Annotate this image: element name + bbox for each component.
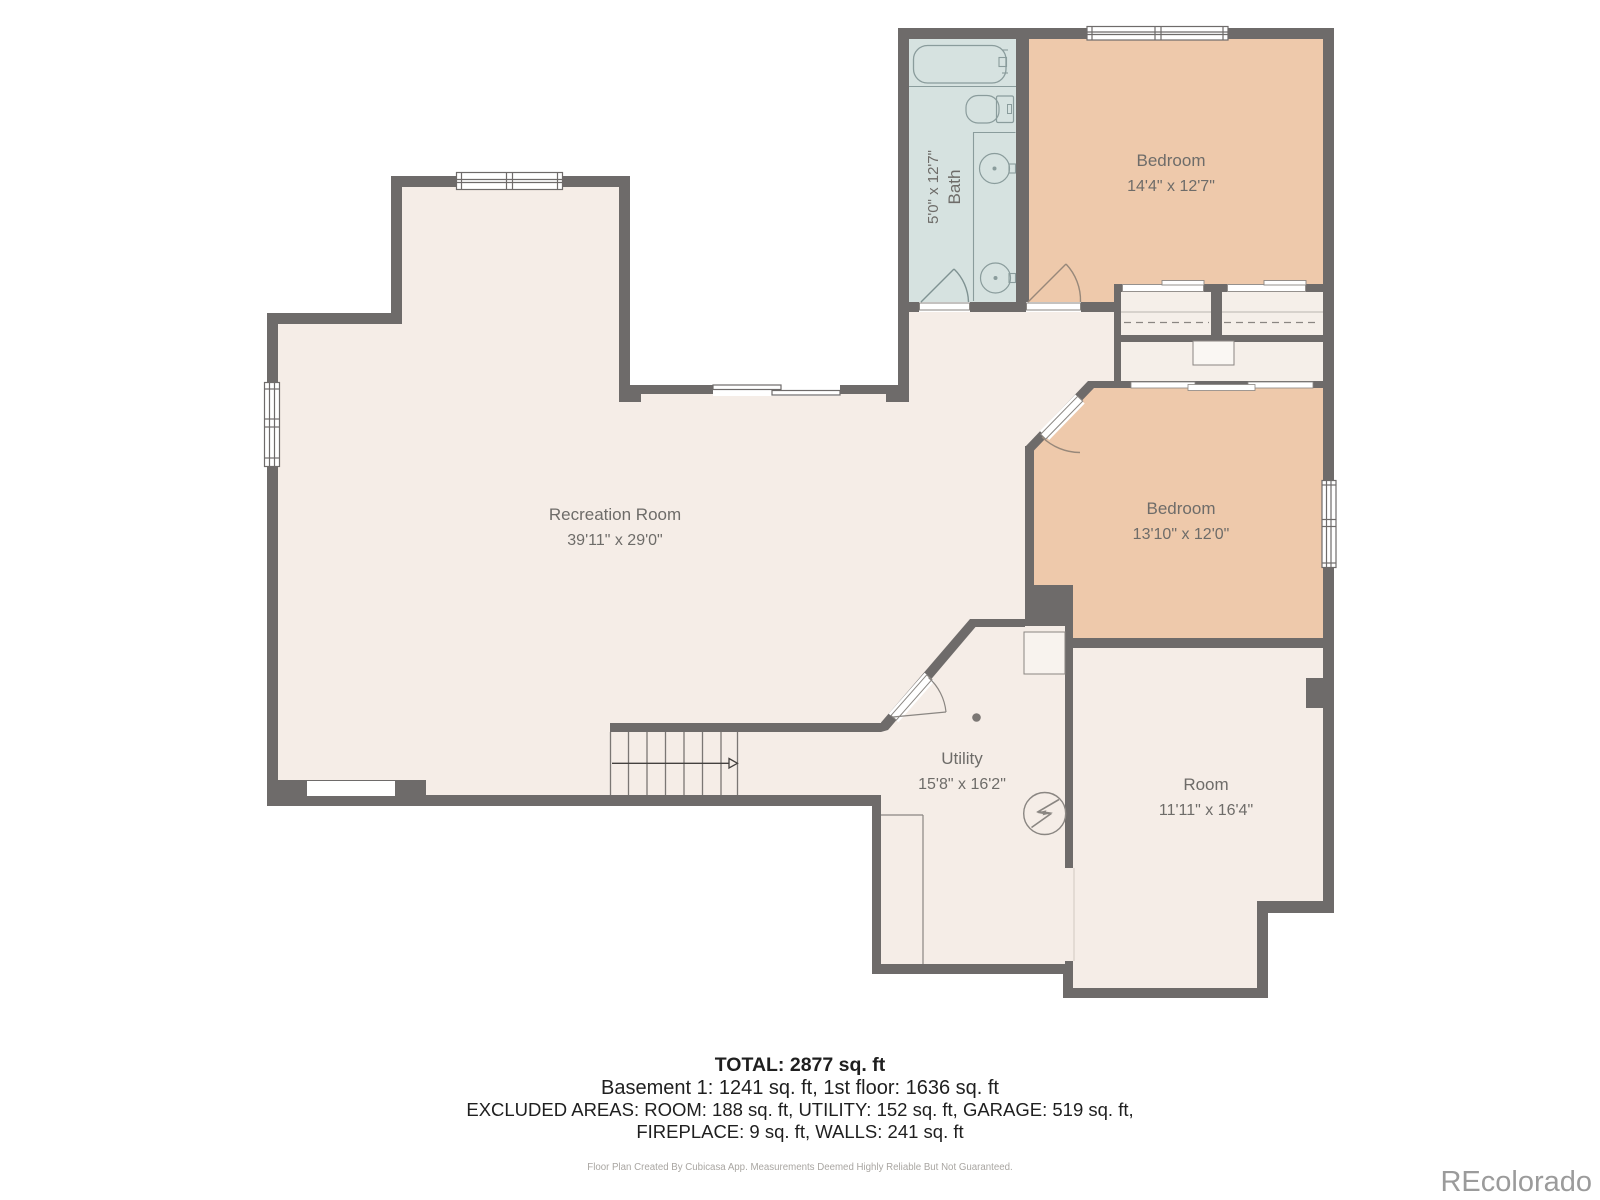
svg-text:FIREPLACE: 9 sq. ft, WALLS: 24: FIREPLACE: 9 sq. ft, WALLS: 241 sq. ft <box>636 1121 963 1142</box>
svg-text:Basement 1: 1241 sq. ft, 1st f: Basement 1: 1241 sq. ft, 1st floor: 1636… <box>601 1077 999 1099</box>
svg-text:TOTAL: 2877 sq. ft: TOTAL: 2877 sq. ft <box>715 1054 886 1076</box>
svg-text:14'4" x 12'7": 14'4" x 12'7" <box>1127 178 1215 195</box>
svg-text:15'8" x 16'2": 15'8" x 16'2" <box>918 776 1006 793</box>
svg-text:Utility: Utility <box>941 749 983 768</box>
svg-text:Bedroom: Bedroom <box>1137 151 1206 170</box>
svg-text:Floor Plan Created By Cubicasa: Floor Plan Created By Cubicasa App. Meas… <box>587 1162 1012 1173</box>
svg-text:Bedroom: Bedroom <box>1147 499 1216 518</box>
svg-text:Bath: Bath <box>945 170 964 205</box>
svg-text:39'11" x 29'0": 39'11" x 29'0" <box>567 532 662 549</box>
svg-text:5'0" x 12'7": 5'0" x 12'7" <box>925 150 942 224</box>
svg-text:Recreation Room: Recreation Room <box>549 505 681 524</box>
svg-text:REcolorado: REcolorado <box>1440 1166 1592 1198</box>
svg-text:13'10" x 12'0": 13'10" x 12'0" <box>1133 526 1230 543</box>
svg-text:EXCLUDED AREAS: ROOM: 188 sq.: EXCLUDED AREAS: ROOM: 188 sq. ft, UTILIT… <box>466 1099 1133 1120</box>
svg-text:Room: Room <box>1183 775 1228 794</box>
svg-text:11'11" x 16'4": 11'11" x 16'4" <box>1159 802 1253 819</box>
